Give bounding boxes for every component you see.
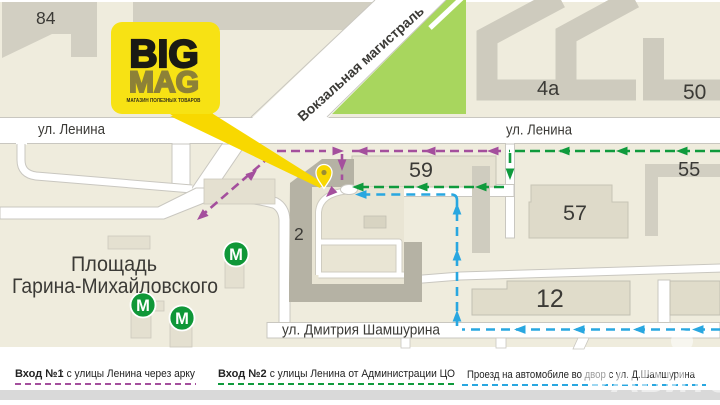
svg-text:Гарина-Михайловского: Гарина-Михайловского xyxy=(12,275,218,298)
svg-text:2: 2 xyxy=(294,224,304,244)
svg-text:ул. Ленина: ул. Ленина xyxy=(38,121,106,138)
svg-text:МАГАЗИН ПОЛЕЗНЫХ ТОВАРОВ: МАГАЗИН ПОЛЕЗНЫХ ТОВАРОВ xyxy=(127,98,201,104)
svg-text:ул. Дмитрия Шамшурина: ул. Дмитрия Шамшурина xyxy=(282,323,441,339)
svg-text:М: М xyxy=(229,246,243,264)
svg-text:Авито: Авито xyxy=(610,357,720,400)
svg-text:: с улицы Ленина через арку: : с улицы Ленина через арку xyxy=(61,368,195,380)
svg-text:59: 59 xyxy=(409,158,433,182)
svg-text:Вход №2: Вход №2 xyxy=(218,368,267,380)
svg-text:Вход №1: Вход №1 xyxy=(15,368,64,380)
svg-text:12: 12 xyxy=(536,285,564,313)
svg-text:М: М xyxy=(136,297,150,315)
svg-text:4а: 4а xyxy=(537,78,560,100)
svg-text:Площадь: Площадь xyxy=(71,253,157,276)
svg-text:57: 57 xyxy=(563,201,587,225)
svg-text:М: М xyxy=(175,310,189,328)
svg-text:84: 84 xyxy=(36,8,56,28)
svg-text:50: 50 xyxy=(683,81,706,104)
svg-text:: с улицы Ленина от Администр: : с улицы Ленина от Администрации ЦО xyxy=(264,368,455,380)
svg-text:55: 55 xyxy=(678,159,700,181)
svg-text:ул. Ленина: ул. Ленина xyxy=(506,122,573,139)
svg-text:MAG: MAG xyxy=(129,66,199,99)
